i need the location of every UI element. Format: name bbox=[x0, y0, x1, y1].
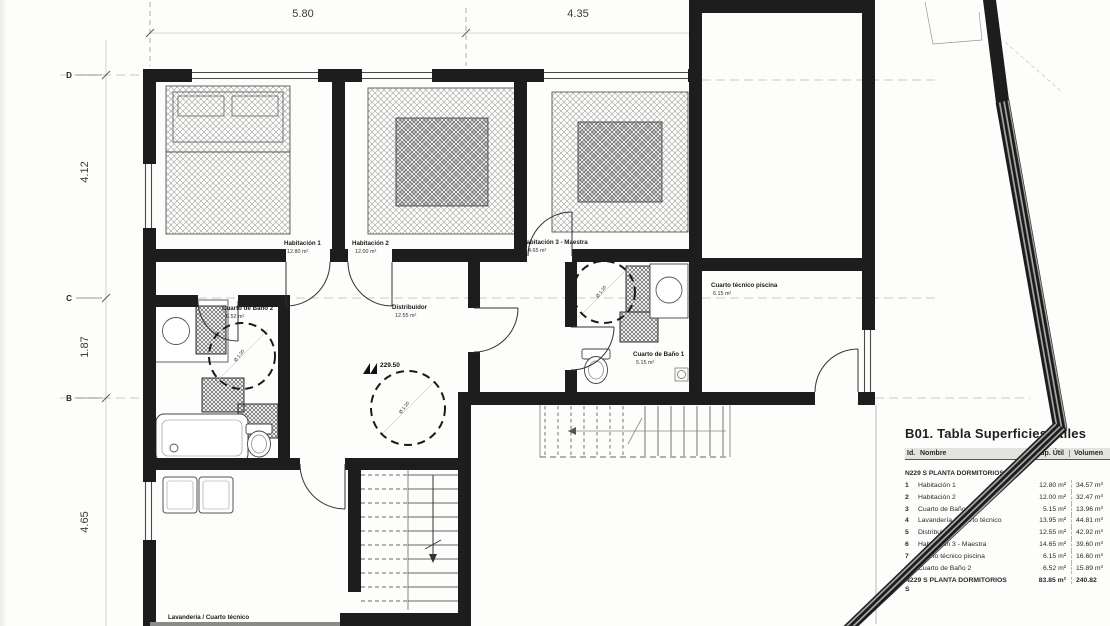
window bbox=[146, 482, 152, 540]
window bbox=[362, 73, 432, 79]
room-area-distribuidor: 12.55 m² bbox=[395, 313, 416, 319]
construction-lines bbox=[60, 75, 1030, 398]
room-label-habitacion-2: Habitación 2 bbox=[352, 240, 389, 247]
cell-vol: 16.60 m³ bbox=[1071, 551, 1110, 563]
shower-hatch bbox=[196, 306, 226, 354]
turning-circle-label: Ø 1.20 bbox=[233, 348, 246, 362]
dim-left-3: 4.65 bbox=[79, 511, 91, 532]
cell-vol: 39.60 m³ bbox=[1071, 539, 1110, 551]
cell-vol: 34.57 m³ bbox=[1071, 480, 1110, 492]
door-laundry bbox=[300, 464, 345, 509]
room-area-bano-1: 5.15 m² bbox=[636, 360, 654, 366]
window bbox=[544, 73, 688, 79]
door-habitacion-2 bbox=[348, 262, 392, 306]
grid-letter-b: B bbox=[66, 394, 72, 403]
room-area-habitacion-2: 12.00 m² bbox=[355, 249, 376, 255]
bed-habitacion-3 bbox=[552, 92, 688, 232]
shower-hatch bbox=[238, 404, 278, 438]
window bbox=[865, 330, 871, 392]
cell-name: Distribuidor bbox=[918, 527, 1021, 539]
laundry-appliances bbox=[163, 477, 233, 513]
bathroom1-fixtures bbox=[582, 264, 688, 384]
stair-direction-arrow bbox=[568, 427, 576, 435]
cell-vol: 15.89 m³ bbox=[1071, 563, 1110, 575]
room-area-habitacion-1: 12.80 m² bbox=[287, 249, 308, 255]
room-area-bano-2: 6.52 m² bbox=[226, 314, 244, 320]
turning-circle bbox=[573, 261, 635, 323]
cell-id: 1 bbox=[905, 480, 918, 492]
boundary-line bbox=[925, 2, 982, 44]
bedroom-furniture bbox=[166, 86, 688, 234]
door-habitacion-3 bbox=[528, 212, 572, 256]
dim-left-1: 4.12 bbox=[79, 161, 91, 182]
cell-sup: 6.15 m² bbox=[1021, 551, 1071, 563]
cell-sup: 14.65 m² bbox=[1021, 539, 1071, 551]
cell-id: 2 bbox=[905, 492, 918, 504]
surface-table: B01. Tabla Superficies útiles Id. Nombre… bbox=[905, 426, 1110, 593]
bed-habitacion-2 bbox=[368, 88, 516, 234]
toilet-icon bbox=[246, 424, 272, 457]
turning-circles: Ø 1.20 Ø 1.20 Ø 1.20 bbox=[209, 261, 635, 445]
shower-hatch bbox=[626, 266, 658, 312]
walls bbox=[143, 0, 875, 626]
table-title: B01. Tabla Superficies útiles bbox=[905, 426, 1110, 441]
floorplan-canvas: B01. Tabla Superficies útiles Id. Nombre… bbox=[0, 0, 1110, 626]
windows bbox=[146, 73, 871, 541]
table-row: 1 Habitación 1 12.80 m² 34.57 m³ bbox=[905, 480, 1110, 492]
cell-id: 8 bbox=[905, 563, 918, 575]
table-row: 3 Cuarto de Baño 1 5.15 m² 13.96 m³ bbox=[905, 504, 1110, 516]
cell-sup: 12.00 m² bbox=[1021, 492, 1071, 504]
cell-name: Cuarto de Baño 1 bbox=[918, 504, 1021, 516]
table-total-row: N229 S PLANTA DORMITORIOS 83.85 m² 240.8… bbox=[905, 577, 1110, 584]
door-bathroom-2 bbox=[198, 301, 238, 341]
table-row: 5 Distribuidor 12.55 m² 42.92 m³ bbox=[905, 527, 1110, 539]
stairs-exterior bbox=[540, 405, 730, 457]
window bbox=[146, 164, 152, 228]
col-sup: Sup. Útil bbox=[1019, 450, 1069, 457]
room-labels: Habitación 1 12.80 m² Habitación 2 12.00… bbox=[168, 239, 778, 621]
door-master-suite bbox=[474, 308, 518, 352]
sink-basin-icon bbox=[163, 318, 190, 345]
table-group-header: N229 S PLANTA DORMITORIOS bbox=[905, 470, 1110, 477]
dimension-annotations: 5.80 4.35 4.12 1.87 4.65 D C B bbox=[66, 2, 697, 626]
bed-habitacion-1 bbox=[166, 86, 290, 234]
cell-name: Habitación 3 - Maestra bbox=[918, 539, 1021, 551]
cell-name: Habitación 1 bbox=[918, 480, 1021, 492]
table-footer: S bbox=[905, 586, 1110, 593]
total-sup: 83.85 m² bbox=[1021, 577, 1071, 584]
cell-sup: 12.55 m² bbox=[1021, 527, 1071, 539]
doors bbox=[198, 212, 858, 509]
cell-vol: 13.96 m³ bbox=[1071, 504, 1110, 516]
cell-name: Cuarto técnico piscina bbox=[918, 551, 1021, 563]
bathtub-icon bbox=[156, 414, 248, 462]
cell-vol: 32.47 m³ bbox=[1071, 492, 1110, 504]
level-mark-value: 229.50 bbox=[380, 362, 400, 369]
turning-circle-label: Ø 1.20 bbox=[398, 400, 411, 414]
cell-id: 5 bbox=[905, 527, 918, 539]
toilet-icon bbox=[582, 349, 610, 384]
col-vol: Volumen bbox=[1069, 450, 1110, 457]
level-marker: 229.50 bbox=[363, 362, 400, 374]
turning-circle bbox=[371, 371, 445, 445]
stairs-main bbox=[361, 470, 458, 610]
window bbox=[192, 73, 318, 79]
shower-hatch bbox=[202, 378, 244, 412]
room-label-piscina: Cuarto técnico piscina bbox=[711, 282, 778, 289]
cell-vol: 42.92 m³ bbox=[1071, 527, 1110, 539]
cell-name: Habitación 2 bbox=[918, 492, 1021, 504]
cell-id: 7 bbox=[905, 551, 918, 563]
cell-id: 3 bbox=[905, 504, 918, 516]
grid-letter-c: C bbox=[66, 294, 72, 303]
dim-left-2: 1.87 bbox=[79, 336, 91, 357]
cell-sup: 6.52 m² bbox=[1021, 563, 1071, 575]
room-label-habitacion-3: Habitación 3 - Maestra bbox=[522, 239, 588, 246]
cell-sup: 13.95 m² bbox=[1021, 515, 1071, 527]
door-habitacion-1 bbox=[286, 262, 330, 306]
door-pool-room bbox=[815, 349, 858, 392]
stair-direction-arrow bbox=[429, 554, 437, 563]
dim-top-1: 5.80 bbox=[292, 8, 313, 20]
table-row: 6 Habitación 3 - Maestra 14.65 m² 39.60 … bbox=[905, 539, 1110, 551]
sink-counter bbox=[650, 264, 688, 318]
washer-icon bbox=[163, 477, 197, 513]
cell-sup: 12.80 m² bbox=[1021, 480, 1071, 492]
door-bathroom-1 bbox=[571, 327, 614, 370]
cell-name: Cuarto de Baño 2 bbox=[918, 563, 1021, 575]
turning-circle-label: Ø 1.20 bbox=[595, 284, 608, 298]
cell-id: 4 bbox=[905, 515, 918, 527]
table-row: 2 Habitación 2 12.00 m² 32.47 m³ bbox=[905, 492, 1110, 504]
dryer-icon bbox=[199, 477, 233, 513]
table-row: 7 Cuarto técnico piscina 6.15 m² 16.60 m… bbox=[905, 551, 1110, 563]
room-label-lavanderia: Lavandería / Cuarto técnico bbox=[168, 614, 249, 621]
table-header: Id. Nombre Sup. Útil Volumen bbox=[905, 448, 1110, 460]
cell-name: Lavandería / Cuarto técnico bbox=[918, 515, 1021, 527]
sink-counter bbox=[152, 300, 228, 362]
total-vol: 240.82 bbox=[1071, 577, 1110, 584]
room-label-habitacion-1: Habitación 1 bbox=[284, 240, 321, 247]
bathroom2-fixtures bbox=[152, 300, 278, 462]
col-id: Id. bbox=[907, 450, 920, 457]
cell-sup: 5.15 m² bbox=[1021, 504, 1071, 516]
room-label-distribuidor: Distribuidor bbox=[392, 304, 428, 311]
shower-hatch bbox=[620, 312, 658, 342]
turning-circle bbox=[209, 323, 275, 389]
floor-drain-icon bbox=[675, 368, 688, 381]
table-row: 4 Lavandería / Cuarto técnico 13.95 m² 4… bbox=[905, 515, 1110, 527]
room-area-habitacion-3: 14.65 m² bbox=[525, 248, 546, 254]
scan-edge bbox=[0, 0, 7, 626]
table-row: 8 Cuarto de Baño 2 6.52 m² 15.89 m³ bbox=[905, 563, 1110, 575]
dim-top-2: 4.35 bbox=[567, 8, 588, 20]
cell-id: 6 bbox=[905, 539, 918, 551]
grid-letter-d: D bbox=[66, 71, 72, 80]
total-name: N229 S PLANTA DORMITORIOS bbox=[905, 577, 1021, 584]
col-name: Nombre bbox=[920, 450, 1019, 457]
room-label-bano-1: Cuarto de Baño 1 bbox=[633, 351, 685, 358]
cell-vol: 44.81 m³ bbox=[1071, 515, 1110, 527]
sink-basin-icon bbox=[656, 277, 682, 303]
room-label-bano-2: Cuarto de Baño 2 bbox=[222, 305, 274, 312]
room-area-piscina: 6.15 m² bbox=[713, 291, 731, 297]
